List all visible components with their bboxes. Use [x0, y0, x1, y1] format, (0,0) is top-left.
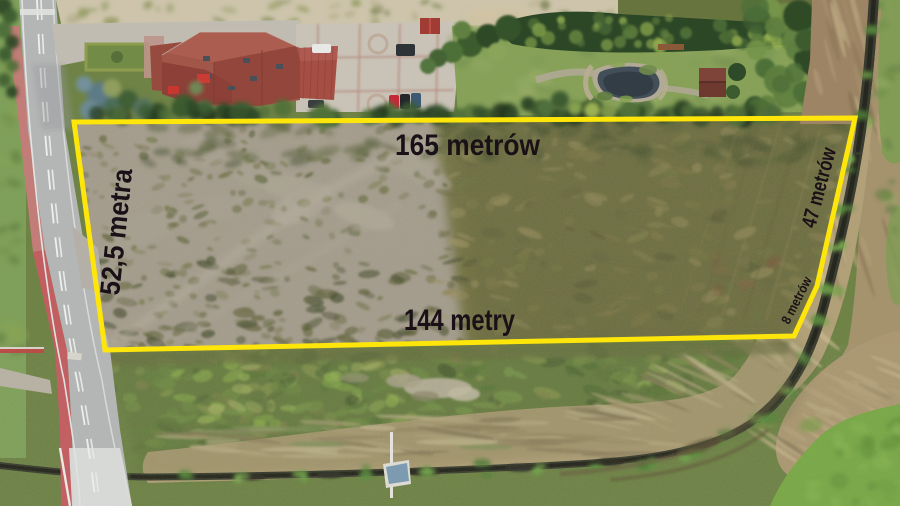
svg-text:144 metry: 144 metry: [404, 304, 515, 337]
svg-text:165 metrów: 165 metrów: [395, 129, 541, 162]
